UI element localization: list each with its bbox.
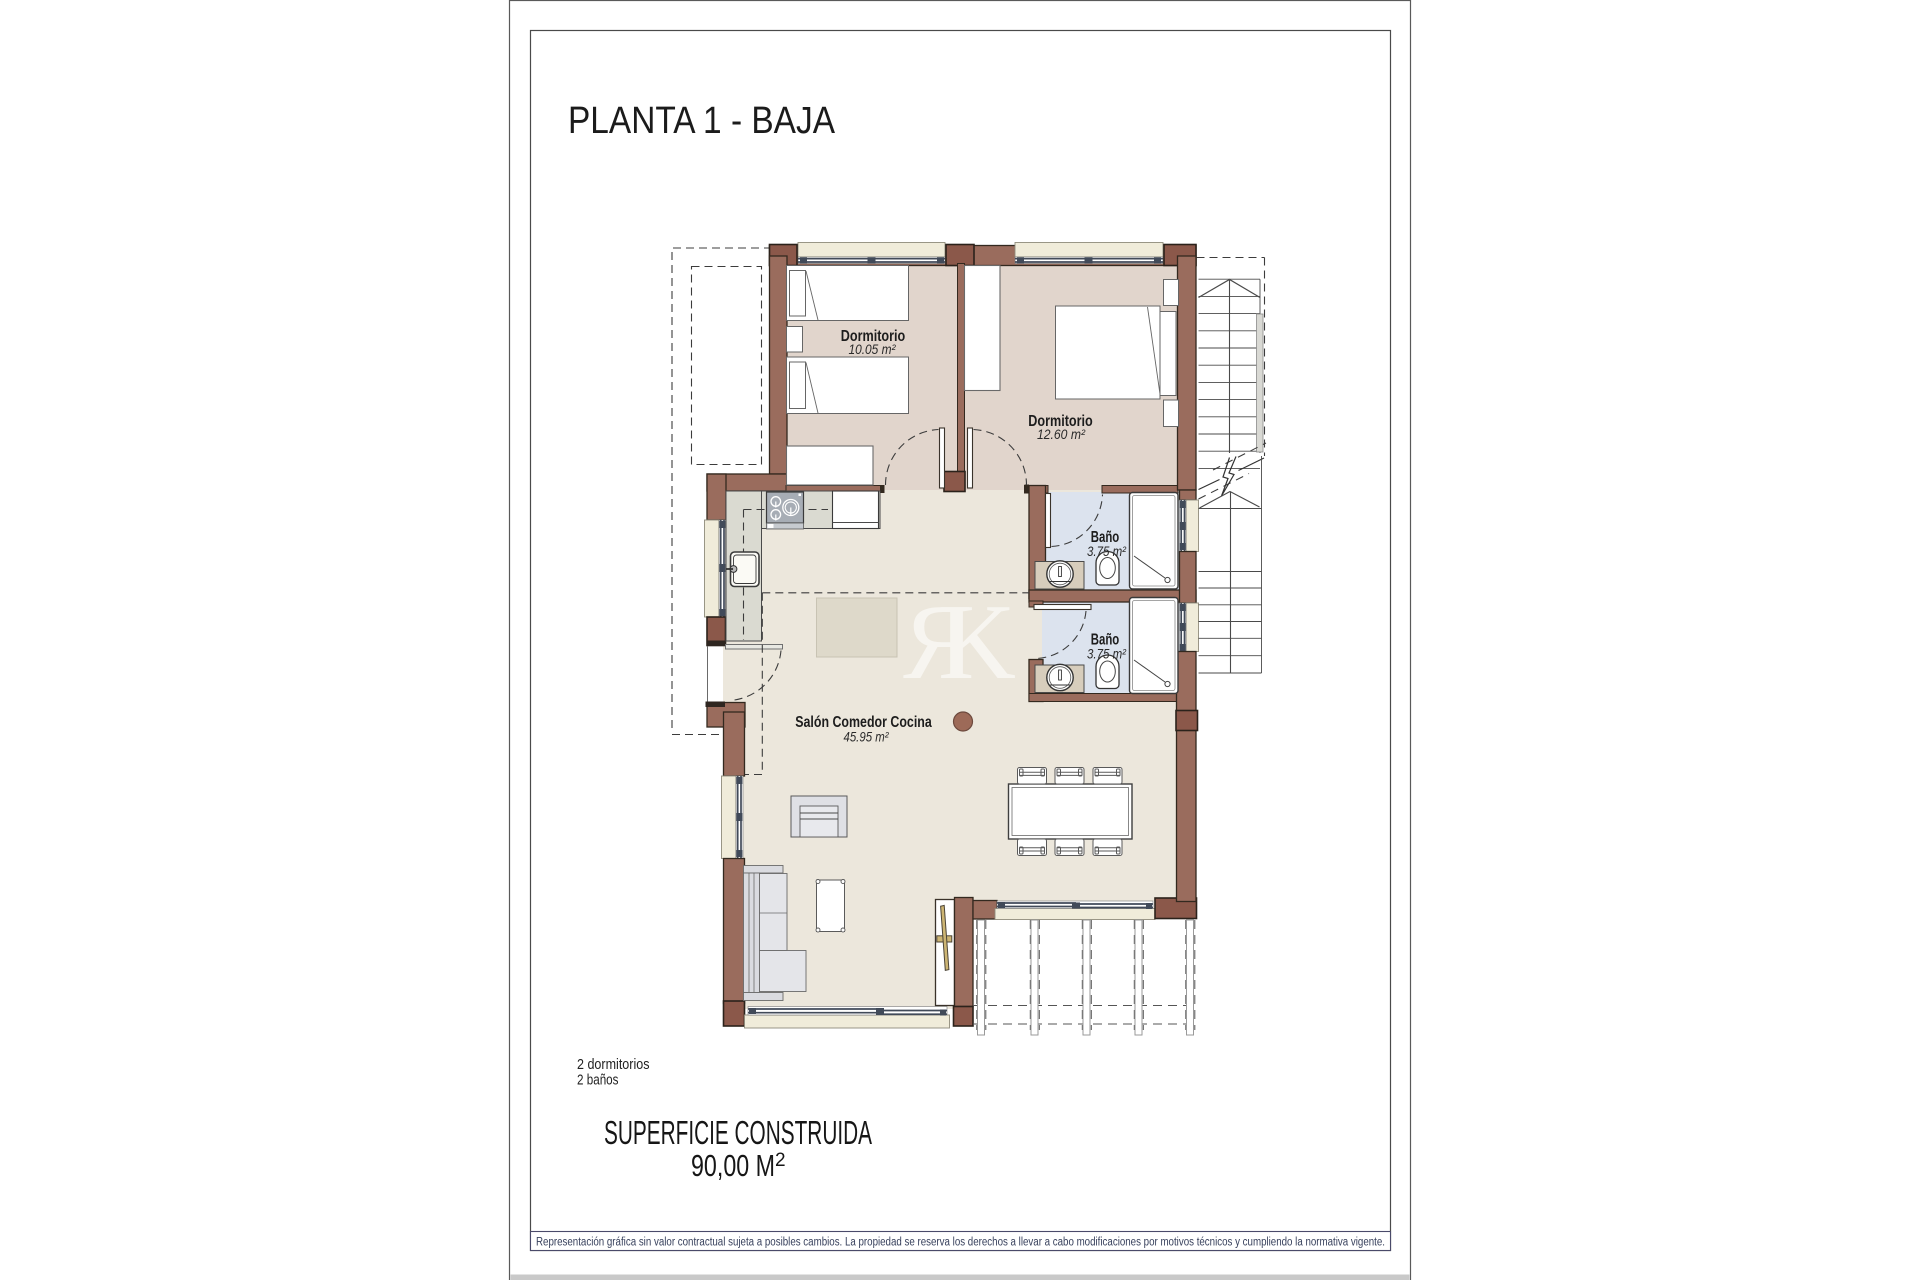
svg-text:K: K [938,583,1016,702]
svg-text:45.95 m²: 45.95 m² [844,730,889,745]
svg-text:12.60 m²: 12.60 m² [1037,427,1085,442]
svg-text:3.75 m²: 3.75 m² [1087,544,1126,559]
svg-text:PLANTA 1 - BAJA: PLANTA 1 - BAJA [568,100,836,142]
svg-text:90,00 M2: 90,00 M2 [691,1148,786,1183]
svg-text:10.05 m²: 10.05 m² [849,342,896,357]
svg-text:SUPERFICIE CONSTRUIDA: SUPERFICIE CONSTRUIDA [604,1114,872,1151]
svg-text:3.75 m²: 3.75 m² [1087,647,1126,662]
svg-text:2 baños: 2 baños [577,1073,619,1089]
svg-text:2 dormitorios: 2 dormitorios [577,1057,650,1073]
svg-text:Representación gráfica sin val: Representación gráfica sin valor contrac… [536,1237,1385,1249]
svg-text:Salón Comedor Cocina: Salón Comedor Cocina [795,714,932,731]
